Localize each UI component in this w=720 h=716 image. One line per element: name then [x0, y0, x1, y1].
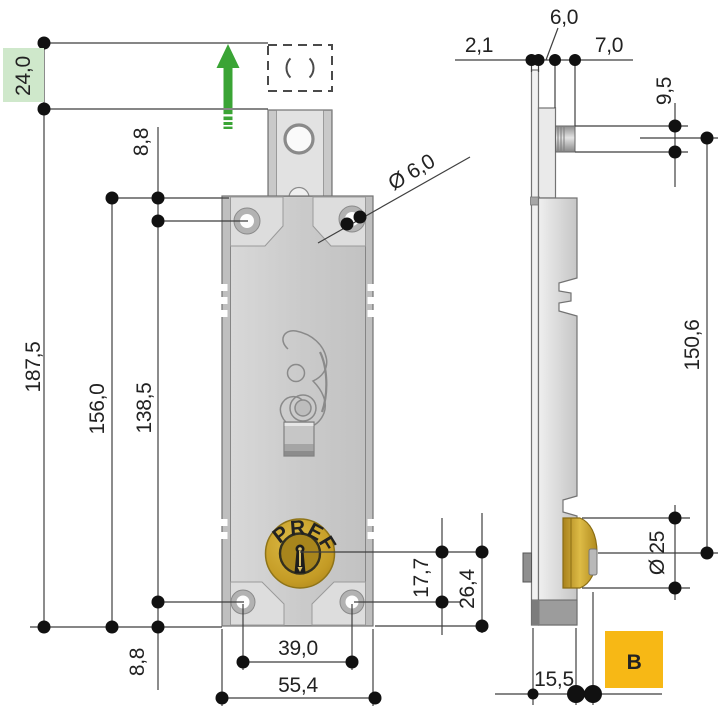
technical-drawing-page: PREFER: [0, 0, 720, 716]
dim-bottom-hole-offset-label: 8,8: [126, 648, 149, 676]
dim-cylinder-to-edge-label: 26,4: [456, 569, 479, 609]
side-view: [523, 70, 597, 625]
dim-cylinder-to-hole-label: 17,7: [410, 558, 433, 598]
dim-cylinder-diameter-label: Ø 25: [646, 531, 669, 575]
dim-plate-thickness-label: 2,1: [465, 34, 493, 57]
side-pin: [556, 126, 576, 152]
latch-tab: [268, 110, 332, 198]
dim-screw-hole-diameter-label: Ø 6,0: [384, 150, 439, 195]
dim-total-height-label: 187,5: [22, 341, 45, 392]
side-cylinder: [563, 518, 597, 588]
dim-plate-offset-label: 6,0: [550, 6, 578, 29]
side-upper-plate: [539, 108, 556, 198]
side-latch-block: [523, 553, 532, 582]
dim-pin-to-cylinder-label: 150,6: [681, 319, 704, 370]
up-arrow-icon: [217, 44, 240, 129]
dim-hole-spacing-horizontal-label: 39,0: [278, 637, 318, 660]
latch-tab-hole: [285, 125, 313, 153]
front-view: PREFER: [0, 0, 375, 626]
keyhole: [295, 545, 306, 574]
dim-travel-label: 24,0: [12, 56, 35, 96]
variant-badge-letter: B: [627, 651, 642, 674]
side-cylinder-cap: [589, 549, 597, 575]
dim-pin-diameter-label: 9,5: [653, 77, 676, 105]
dim-case-height-label: 156,0: [86, 383, 109, 434]
dim-pin-length-label: 7,0: [595, 34, 623, 57]
lock-case: PREFER: [0, 0, 375, 626]
latch-block: [284, 422, 314, 456]
dim-case-width-label: 55,4: [278, 674, 318, 697]
latch-extended-position-outline: [268, 45, 332, 91]
side-foot-block: [532, 600, 578, 625]
lock-technical-drawing: PREFER: [0, 0, 720, 716]
dim-hole-spacing-vertical-label: 138,5: [133, 382, 156, 433]
variant-badge: B: [605, 631, 663, 688]
dim-foot-depth-label: 15,5: [534, 668, 574, 691]
dim-top-hole-offset-label: 8,8: [130, 128, 153, 156]
side-sliding-plate: [532, 70, 539, 625]
